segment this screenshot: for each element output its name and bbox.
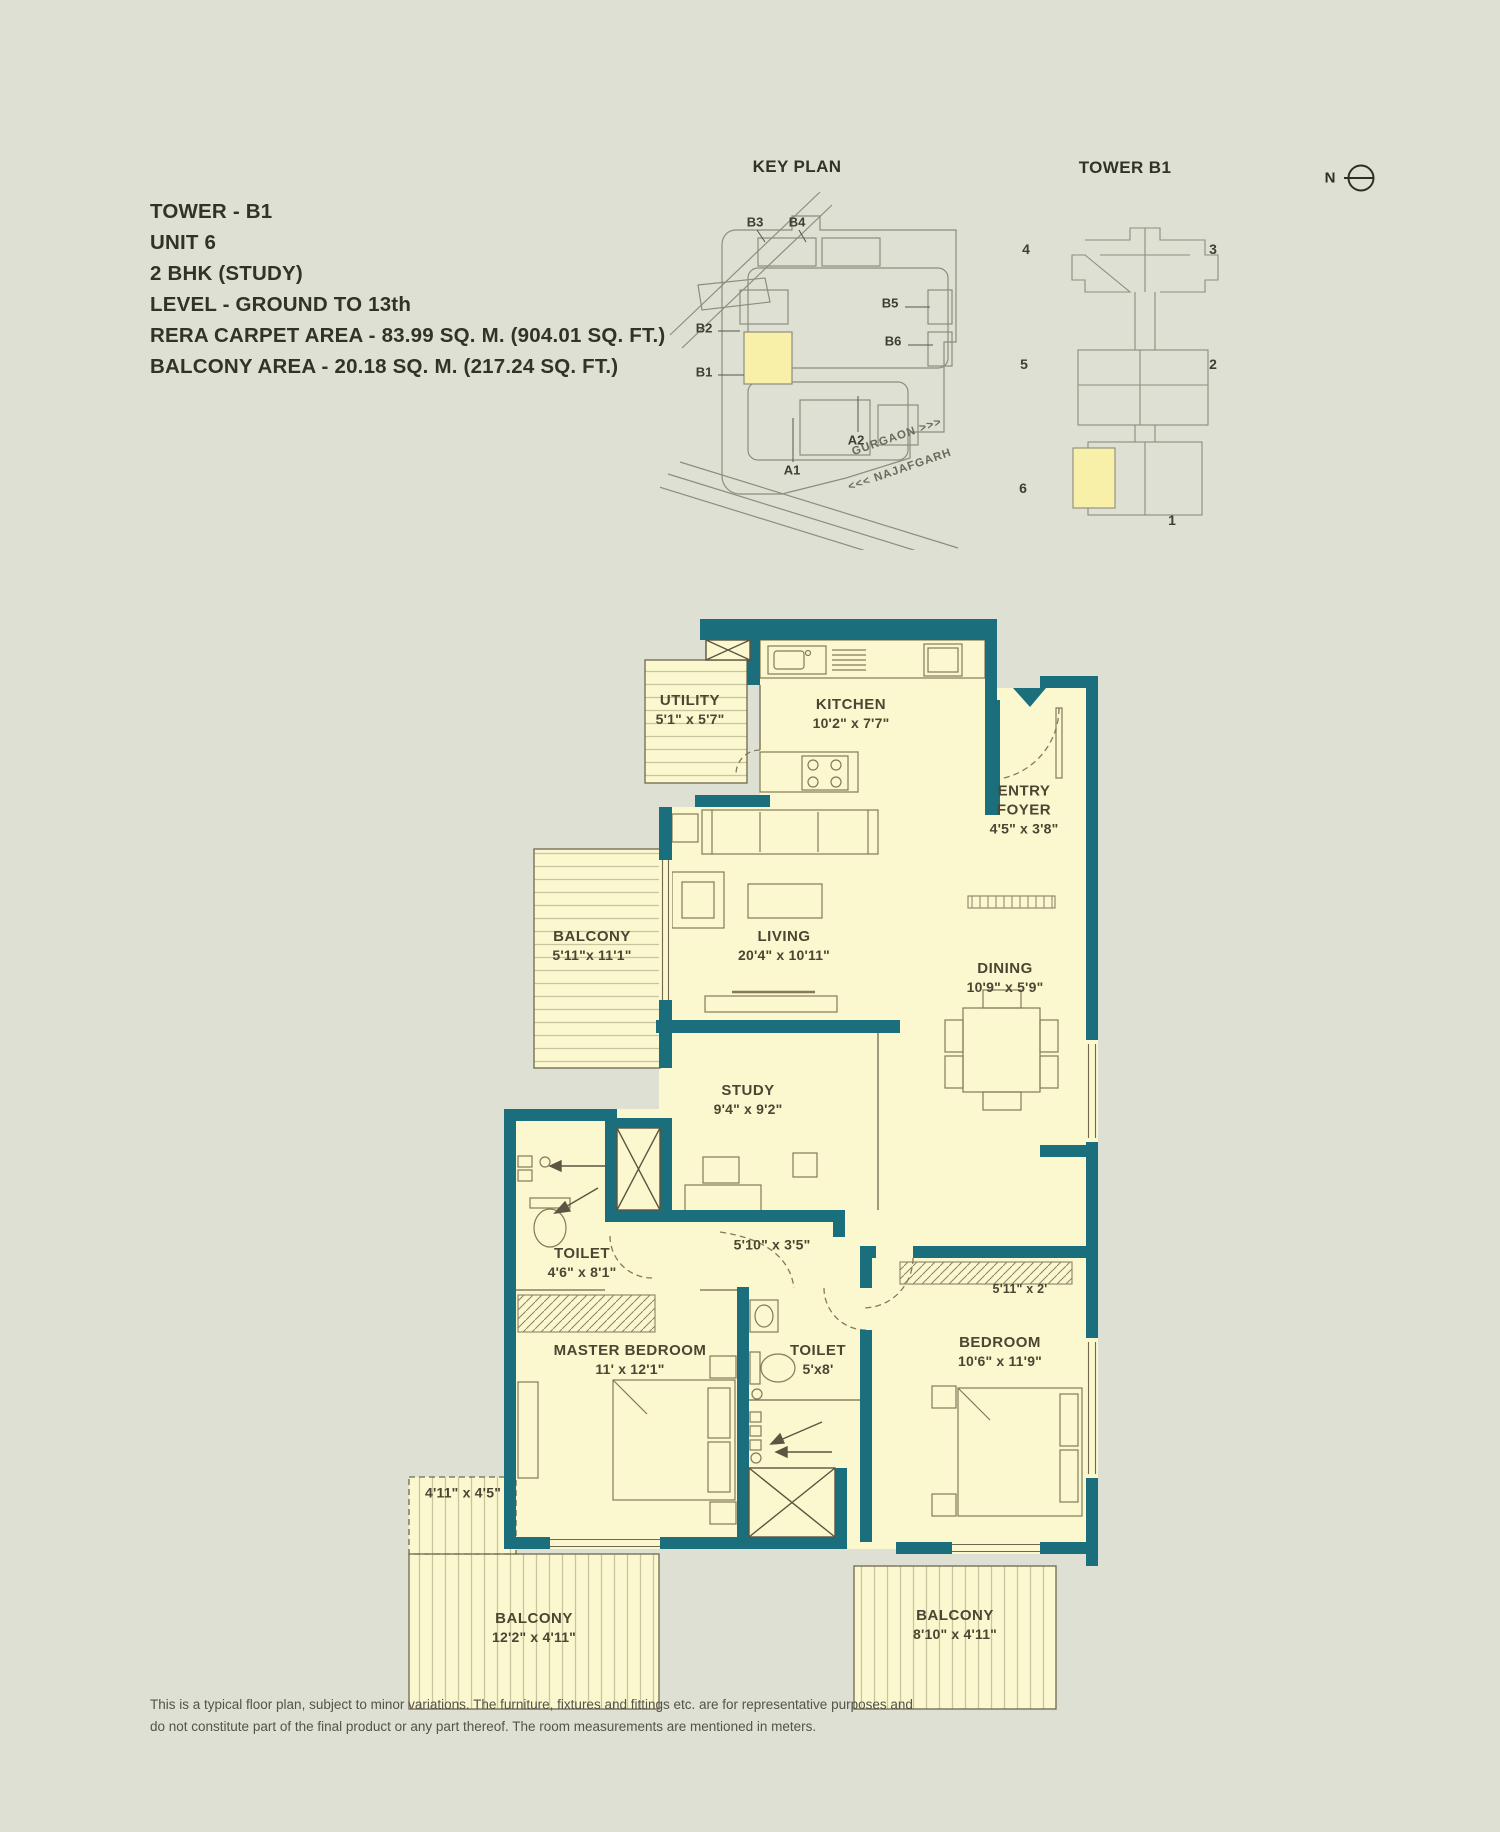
wing-mid-lines	[1078, 350, 1208, 425]
building-b2	[740, 290, 788, 324]
master-wardrobe-hatch	[518, 1295, 655, 1332]
tower-plate-drawing	[1040, 180, 1240, 525]
wing-mid	[1078, 350, 1208, 425]
tower-label: TOWER - B1	[150, 196, 665, 227]
road-island	[698, 278, 770, 310]
label-b5: B5	[882, 296, 899, 311]
toilet-1-label: TOILET 4'6" x 8'1"	[548, 1245, 617, 1281]
floor-plan-drawing	[400, 600, 1110, 1715]
dining-label: DINING 10'9" x 5'9"	[967, 960, 1044, 996]
living-label: LIVING 20'4" x 10'11"	[738, 928, 830, 964]
road-line	[680, 462, 958, 548]
balcony-bl-label: BALCONY 12'2" x 4'11"	[492, 1610, 576, 1646]
small-balcony-dim-label: 4'11" x 4'5"	[425, 1484, 501, 1502]
label-a1: A1	[784, 463, 801, 478]
label-b1: B1	[696, 365, 713, 380]
unit-floor-plan: UTILITY 5'1" x 5'7" KITCHEN 10'2" x 7'7"…	[400, 600, 1110, 1715]
plate-unit-2: 2	[1209, 356, 1217, 372]
plate-unit-4: 4	[1022, 241, 1030, 257]
bedroom-label: BEDROOM 10'6" x 11'9"	[958, 1334, 1042, 1370]
master-bedroom-label: MASTER BEDROOM 11' x 12'1"	[554, 1342, 707, 1378]
road-line	[660, 486, 934, 550]
label-b3: B3	[747, 215, 764, 230]
entry-foyer-label: ENTRY FOYER 4'5" x 3'8"	[969, 783, 1079, 838]
study-label: STUDY 9'4" x 9'2"	[714, 1082, 783, 1118]
disclaimer-line-1: This is a typical floor plan, subject to…	[150, 1694, 913, 1716]
key-plan-drawing	[660, 150, 980, 550]
kitchen-label: KITCHEN 10'2" x 7'7"	[813, 696, 890, 732]
passage-dim-label: 5'10" x 3'5"	[734, 1236, 811, 1254]
type-label: 2 BHK (STUDY)	[150, 258, 665, 289]
plate-unit-5: 5	[1020, 356, 1028, 372]
core-link	[1135, 425, 1155, 442]
building-b1-highlight	[744, 332, 792, 384]
floor-plan-page: TOWER - B1 UNIT 6 2 BHK (STUDY) LEVEL - …	[0, 0, 1500, 1832]
carpet-area-label: RERA CARPET AREA - 83.99 SQ. M. (904.01 …	[150, 320, 665, 351]
core-link	[1135, 292, 1155, 350]
balcony-br-label: BALCONY 8'10" x 4'11"	[913, 1607, 997, 1643]
unit-label: UNIT 6	[150, 227, 665, 258]
shoe-rack-hatch	[968, 896, 1055, 908]
wing-top-lines	[1100, 228, 1190, 292]
plate-unit-6: 6	[1019, 480, 1027, 496]
utility-label: UTILITY 5'1" x 5'7"	[656, 692, 725, 728]
toilet-2-label: TOILET 5'x8'	[790, 1342, 846, 1378]
bedroom-wardrobe-dim-label: 5'11" x 2'	[993, 1282, 1048, 1298]
balcony-left-label: BALCONY 5'11"x 11'1"	[552, 928, 631, 964]
road-line	[670, 192, 820, 335]
bedroom-wardrobe-hatch	[900, 1262, 1072, 1284]
balcony-area-label: BALCONY AREA - 20.18 SQ. M. (217.24 SQ. …	[150, 351, 665, 382]
label-b6: B6	[885, 334, 902, 349]
building-b4	[822, 238, 880, 266]
tower-plate	[1040, 180, 1240, 525]
road-line	[668, 474, 946, 550]
plate-unit-3: 3	[1209, 241, 1217, 257]
tower-plate-title: TOWER B1	[1079, 158, 1172, 178]
plate-unit-1: 1	[1168, 512, 1176, 528]
key-plan: B3 B4 B2 B1 B5 B6 A1 A2 GURGAON >>> <<< …	[660, 150, 980, 550]
disclaimer-line-2: do not constitute part of the final prod…	[150, 1716, 913, 1738]
label-b4: B4	[789, 215, 806, 230]
level-label: LEVEL - GROUND TO 13th	[150, 289, 665, 320]
disclaimer: This is a typical floor plan, subject to…	[150, 1694, 913, 1738]
unit-info-block: TOWER - B1 UNIT 6 2 BHK (STUDY) LEVEL - …	[150, 196, 665, 382]
inner-road	[748, 382, 908, 460]
north-icon	[1310, 158, 1380, 198]
unit-6-highlight	[1073, 448, 1115, 508]
label-b2: B2	[696, 321, 713, 336]
